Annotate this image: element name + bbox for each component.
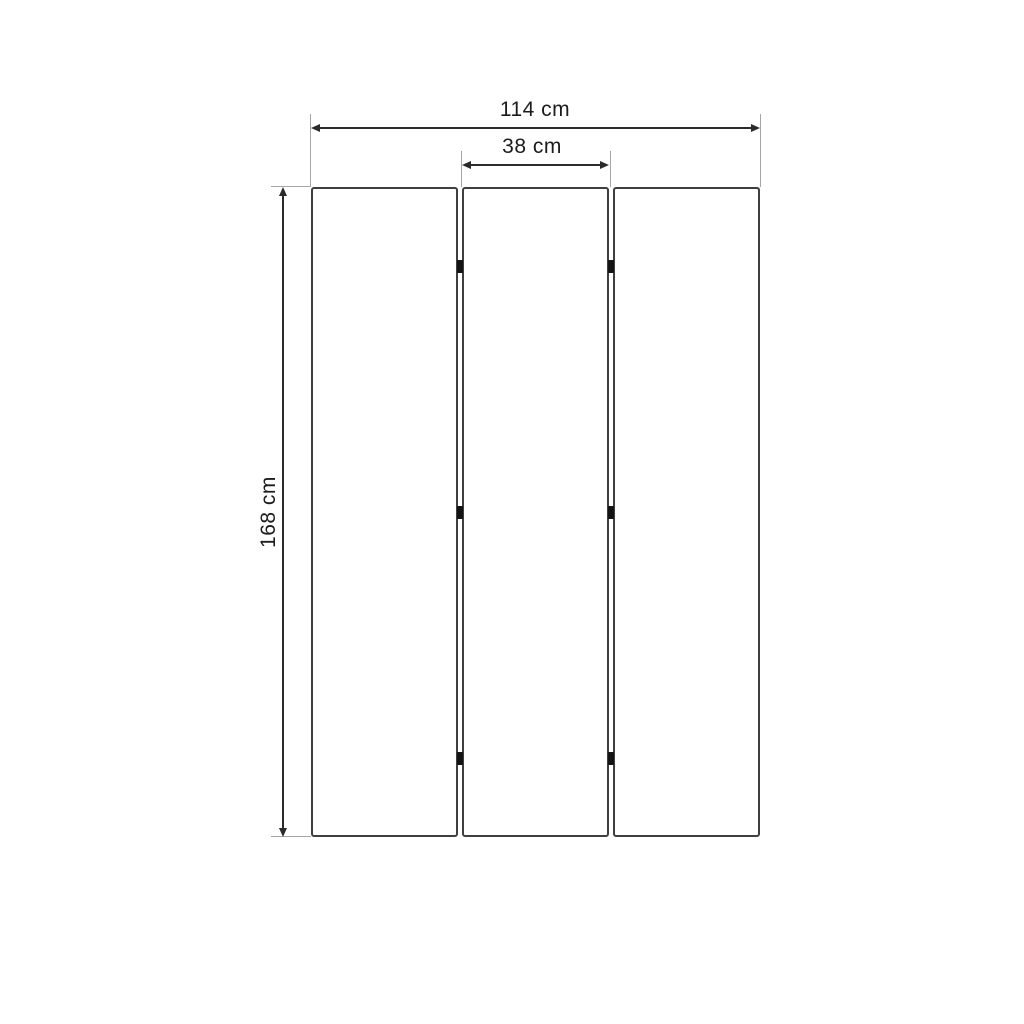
extension-line-total-right — [760, 114, 761, 187]
arrowhead-down-icon — [279, 828, 287, 837]
panel-2 — [462, 187, 609, 837]
hinge-left-bottom — [457, 752, 463, 765]
hinge-left-top — [457, 260, 463, 273]
hinge-right-middle — [608, 506, 614, 519]
panel-1 — [311, 187, 458, 837]
hinge-left-middle — [457, 506, 463, 519]
arrowhead-left-icon — [311, 124, 320, 132]
hinge-right-bottom — [608, 752, 614, 765]
extension-line-panel-right — [610, 151, 611, 187]
dimension-line-height — [282, 195, 284, 829]
arrowhead-left-icon — [462, 161, 471, 169]
panel-width-label: 38 cm — [457, 135, 607, 159]
extension-line-height-top — [271, 186, 311, 187]
hinge-right-top — [608, 260, 614, 273]
total-width-label: 114 cm — [460, 98, 610, 122]
panel-3 — [613, 187, 760, 837]
arrowhead-up-icon — [279, 187, 287, 196]
diagram-canvas: 114 cm 38 cm 168 cm — [0, 0, 1024, 1024]
dimension-line-panel-width — [464, 164, 600, 166]
extension-line-height-bottom — [271, 836, 311, 837]
height-label: 168 cm — [257, 437, 281, 587]
arrowhead-right-icon — [751, 124, 760, 132]
arrowhead-right-icon — [600, 161, 609, 169]
dimension-line-total-width — [313, 127, 758, 129]
